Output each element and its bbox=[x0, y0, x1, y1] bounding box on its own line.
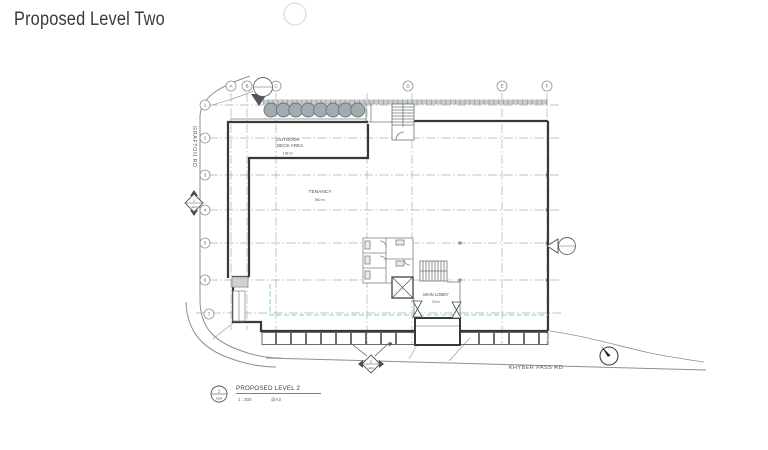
entry-vestibule bbox=[415, 318, 460, 345]
west-service-boxes bbox=[232, 277, 248, 321]
svg-text:OUTDOOR: OUTDOOR bbox=[276, 137, 300, 142]
tree-icon bbox=[264, 103, 278, 117]
tree-icon bbox=[301, 103, 315, 117]
stair-core bbox=[414, 261, 460, 318]
north-arrow-icon bbox=[600, 347, 618, 366]
tree-icon bbox=[326, 103, 340, 117]
detail-marker-bottom: 2 A201 bbox=[353, 342, 393, 373]
grid-lines bbox=[196, 93, 561, 344]
drawing-number-bubble: 1 A204 bbox=[211, 386, 227, 402]
drawing-paper-size: @A3 bbox=[271, 397, 281, 402]
svg-text:A: A bbox=[229, 84, 232, 89]
svg-text:MAIN LOBBY: MAIN LOBBY bbox=[423, 292, 449, 297]
svg-text:DECK AREA: DECK AREA bbox=[277, 143, 304, 148]
column-markers bbox=[459, 174, 549, 282]
section-marker-right bbox=[547, 238, 576, 255]
svg-text:TENANCY: TENANCY bbox=[309, 189, 333, 195]
svg-text:1: 1 bbox=[193, 199, 195, 203]
street-label-grafton: GRAFTON RD bbox=[191, 126, 197, 168]
svg-text:B: B bbox=[245, 84, 248, 89]
tree-icon bbox=[314, 103, 328, 117]
toilet-core bbox=[363, 238, 413, 283]
street-label-khyber: KHYBER PASS RD bbox=[509, 365, 563, 371]
tree-icon bbox=[289, 103, 303, 117]
floor-plan-drawing: A B C D E F 1 2 3 4 5 6 7 bbox=[0, 0, 768, 450]
decorative-circle bbox=[284, 3, 306, 25]
drawing-scale: 1 : 200 bbox=[238, 397, 252, 402]
svg-text:A201: A201 bbox=[191, 206, 197, 209]
svg-text:E: E bbox=[500, 84, 503, 89]
svg-text:138 m²: 138 m² bbox=[283, 152, 294, 156]
svg-text:2: 2 bbox=[370, 360, 372, 364]
svg-text:26 m²: 26 m² bbox=[432, 300, 440, 304]
svg-text:A201: A201 bbox=[368, 367, 374, 370]
drawing-titleblock: 1 A204 PROPOSED LEVEL 2 1 : 200 @A3 bbox=[211, 385, 321, 402]
drawing-title: PROPOSED LEVEL 2 bbox=[236, 385, 301, 392]
svg-text:960 m²: 960 m² bbox=[315, 198, 326, 202]
tree-icon bbox=[338, 103, 352, 117]
tree-icon bbox=[351, 103, 365, 117]
tenancy-label: TENANCY 960 m² bbox=[309, 189, 333, 202]
canopy-band bbox=[262, 333, 548, 345]
main-lobby-label: MAIN LOBBY 26 m² bbox=[423, 292, 449, 304]
outdoor-deck-label: OUTDOOR DECK AREA 138 m² bbox=[276, 137, 304, 156]
lift-shaft bbox=[392, 277, 413, 298]
stair-north bbox=[392, 104, 414, 140]
svg-text:F: F bbox=[546, 84, 549, 89]
svg-text:A204: A204 bbox=[216, 397, 223, 401]
tree-icon bbox=[276, 103, 290, 117]
